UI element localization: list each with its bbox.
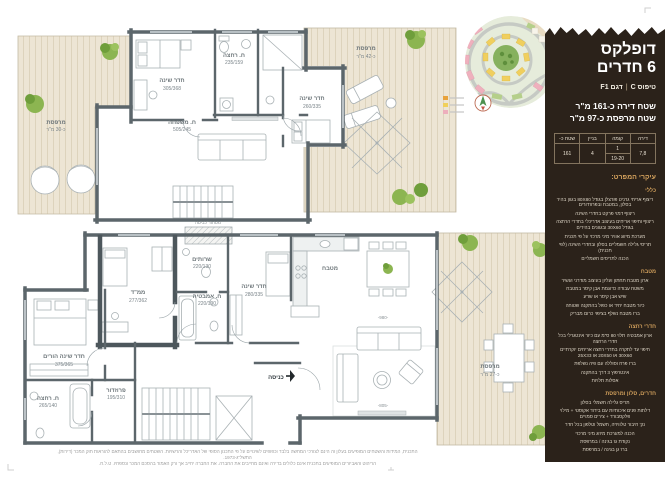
unit-table-row: 7,8 1 19-20 4 161 [555,144,656,164]
spec-item: אינטרפוץ 3 דרך בהתקנה [554,370,656,376]
col-apartment: דירה [630,134,655,144]
lower-floor-plan: ממ"ד 277/362 שרותים 220/130 ח. אמבטיה 22… [25,220,547,445]
model-label: דגם F1 [600,84,622,91]
spec-section-general: כללי ריצוף אריחי גרניט פורצלן בגודל 80X8… [554,188,656,262]
svg-text:כ-27 מ"ר: כ-27 מ"ר [480,372,500,378]
spec-item: הכנה למערכת מיזוג מיני מרכזי [554,431,656,437]
upper-floor-plan: חדר שינה 305/368 ח. רחצה 235/159 ח. משפח… [18,28,456,222]
spec-item: ריצוף וחיפוי אריחים בעיצוב אדריכלי בחדרי… [554,219,656,231]
svg-text:מרפסת: מרפסת [46,120,65,126]
upper-bedroom-furniture [134,40,191,110]
plan-title-line1: דופלקס [554,41,656,59]
spec-item: תריס גלילה חשמלי בסלון [554,400,656,406]
svg-text:ח. רחצה: ח. רחצה [37,396,59,402]
svg-text:305/368: 305/368 [163,86,181,92]
val-apartment: 7,8 [630,144,655,164]
val-floor: 1 19-20 [605,144,630,164]
spec-section-bathrooms: חדרי רחצה ארון אמבטיה תלוי 80 ס"מ עם כיו… [554,324,656,384]
svg-text:375/365: 375/365 [55,362,73,368]
spec-section-kitchen: מטבח ארון מטבח תחתון ועליון בעיצוב מודרנ… [554,269,656,317]
balcony-area: שטח מרפסת כ-97 מ"ר [554,112,656,124]
wing-bedroom-furniture [292,120,330,143]
brochure-page: חדר שינה 305/368 ח. רחצה 235/159 ח. משפח… [0,0,672,480]
svg-text:-805-: -805- [378,403,389,408]
plan-title: דופלקס 6 חדרים [554,41,656,77]
spec-sidebar: דופלקס 6 חדרים טיפוס C|דגם F1 שטח דירה כ… [545,25,665,462]
spec-item: ריצוף דמוי פרקט בחדרי השינה [554,211,656,217]
spec-item: הכנה לתריסים חשמליים [554,256,656,262]
spec-item: תריסי גלילה חשמליים בסלון ובחדרי השינה (… [554,242,656,254]
family-room-furniture [198,117,278,160]
spec-item: מערכת מיזוג אוויר מיני מרכזי על פי תכנית [554,234,656,240]
spec-item: נקודת גז בגינה / במרפסת [554,439,656,445]
spec-item: ברז גן בגינה / במרפסת [554,447,656,453]
svg-text:ח. רחצה: ח. רחצה [223,53,245,59]
svg-text:265/140: 265/140 [39,403,57,409]
svg-text:220/130: 220/130 [193,264,211,270]
spec-item: ריצוף אריחי גרניט פורצלן בגודל 80X80 בגו… [554,197,656,209]
spec-item: נק' חיבור טלוויזיה, חשמל וטלפון בכל חדר [554,422,656,428]
svg-text:220/190: 220/190 [198,301,216,307]
compass-icon [475,95,491,111]
type-model-row: טיפוס C|דגם F1 [554,84,656,91]
disclaimer: התכנית, המידות והשטחים המופיעים בעלון זה… [50,449,425,466]
site-map [464,16,558,108]
lower-right-deck [437,233,545,445]
svg-text:505/245: 505/245 [173,127,191,133]
svg-text:מרפסת: מרפסת [356,46,375,52]
separator: | [626,84,628,91]
spec-item: חיפוי עד לתקרה בחדרי רחצה אריחים יוקרתיי… [554,347,656,359]
svg-text:277/362: 277/362 [129,298,147,304]
spec-item: אסלות תלויות [554,378,656,384]
svg-text:מסתור כביסה: מסתור כביסה [195,220,221,225]
spec-section-rooms: חדרים, סלון ומרפסת תריס גלילה חשמלי בסלו… [554,391,656,453]
type-label: טיפוס C [631,84,656,91]
svg-text:195/310: 195/310 [107,395,125,401]
spec-item: ברז מטבח נשלף בציפוי כרום מבריק [554,311,656,317]
spec-item: משטח עבודה כדוגמת אבן קיסר במטבח [554,286,656,292]
apartment-area: שטח דירה כ-161 מ"ר [554,100,656,112]
svg-text:-980-: -980- [378,315,389,320]
svg-text:280/335: 280/335 [245,292,263,298]
svg-text:ח. אמבטיה: ח. אמבטיה [193,294,222,300]
val-building: 4 [580,144,605,164]
spec-item: דלתות פנים איכותיות עם בידוד אקוסטי + מי… [554,408,656,420]
master-furniture [30,299,98,438]
svg-text:חדר שינה: חדר שינה [159,78,184,84]
dining-furniture [367,242,409,296]
upper-stairs [173,186,233,218]
svg-text:ממ"ד: ממ"ד [131,290,146,296]
spec-item: ארון אמבטיה תלוי 80 ס"מ עם כיור אינטגרלי… [554,333,656,345]
svg-text:ח. משפחה: ח. משפחה [168,120,196,126]
svg-text:כניסה: כניסה [268,375,284,381]
spec-item: ברז פרח וסוללה עם פיה נשלפת [554,361,656,367]
svg-text:חדר שינה הורים: חדר שינה הורים [43,354,85,360]
svg-text:מרפסת: מרפסת [480,364,499,370]
col-area: שטח כ- [555,134,580,144]
disclaimer-line1: התכנית, המידות והשטחים המופיעים בעלון זה… [50,449,425,461]
spec-item: ארון מטבח תחתון ועליון בעיצוב מודרני ועש… [554,278,656,284]
svg-text:שרותים: שרותים [192,257,212,263]
entrance-arrow-icon [286,370,295,382]
specs-heading: עיקרי המפרט: [554,174,656,181]
lower-stairs [142,388,252,440]
svg-text:חדר שינה: חדר שינה [241,284,266,290]
disclaimer-line2: הריהוט והאביזרים המופיעים בתכנית אינם כל… [50,461,425,467]
svg-text:260/335: 260/335 [303,104,321,110]
area-summary: שטח דירה כ-161 מ"ר שטח מרפסת כ-97 מ"ר [554,100,656,124]
spec-item: כיור מטבח יחיד או כפול בהתקנה שטוחה [554,303,656,309]
svg-text:פרוזדור: פרוזדור [106,388,126,394]
col-building: בניין [580,134,605,144]
unit-table-header: דירה קומה בניין שטח כ- [555,134,656,144]
unit-table: דירה קומה בניין שטח כ- 7,8 1 19-20 4 161 [554,133,656,164]
svg-text:כ-30 מ"ר: כ-30 מ"ר [46,127,66,133]
plan-title-line2: 6 חדרים [554,59,656,77]
svg-text:מטבח: מטבח [322,266,338,272]
spec-item: שיש אבן קיסר או שו"ע [554,294,656,300]
kitchen-fixtures [291,237,359,317]
col-floor: קומה [605,134,630,144]
val-area: 161 [555,144,580,164]
svg-text:כ-42 מ"ר: כ-42 מ"ר [356,54,376,60]
svg-text:חדר שינה: חדר שינה [299,96,324,102]
svg-text:235/159: 235/159 [225,60,243,66]
